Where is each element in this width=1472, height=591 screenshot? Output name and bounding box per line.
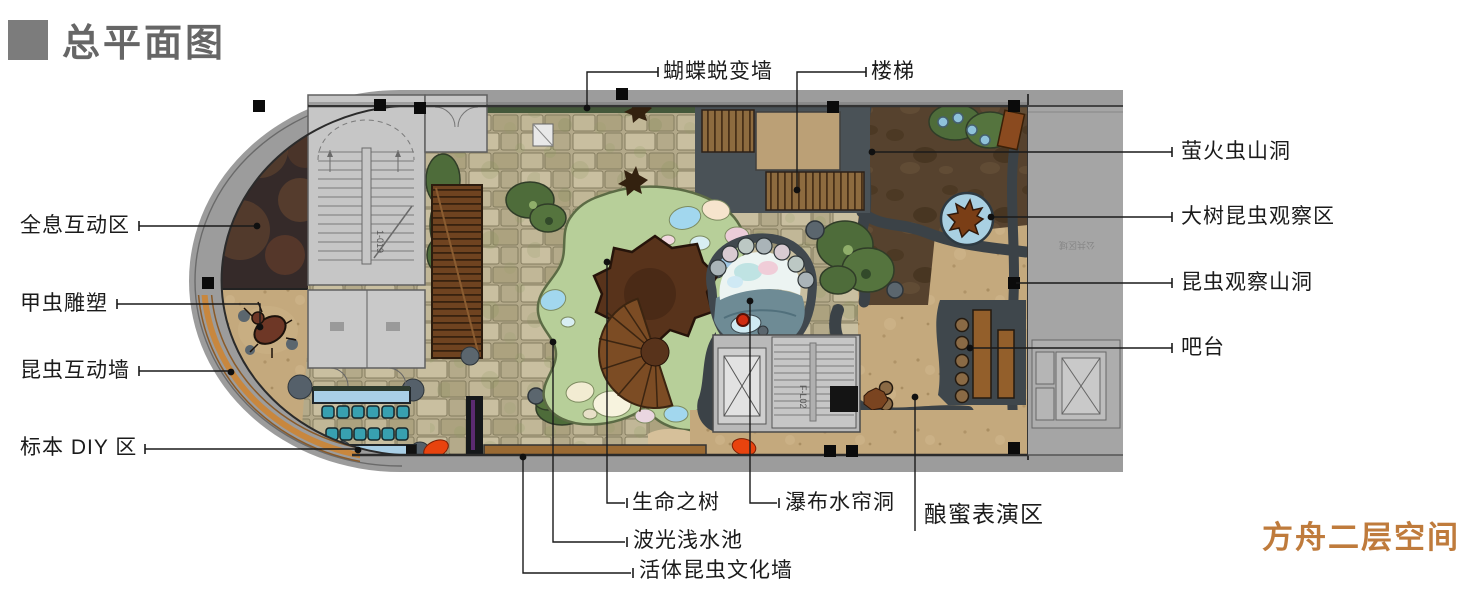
footer-caption: 方舟二层空间 — [1262, 512, 1460, 557]
page-header: 总平面图 — [8, 12, 226, 67]
callout-beetle-sculpture: 甲虫雕塑 — [20, 292, 108, 316]
stair-code-lower-text: F-L02 — [798, 385, 808, 409]
callout-firefly-cave: 萤火虫山洞 — [1181, 140, 1291, 164]
page-title: 总平面图 — [62, 12, 226, 67]
callout-butterfly-wall: 蝴蝶蜕变墙 — [663, 60, 773, 84]
callout-holographic-zone: 全息互动区 — [20, 214, 130, 238]
leader-live-insect-wall — [523, 459, 631, 573]
callout-specimen-diy: 标本 DIY 区 — [20, 436, 137, 460]
wooden-stair — [432, 185, 482, 365]
callout-waterfall-cave: 瀑布水帘洞 — [785, 491, 895, 515]
title-square-icon — [8, 20, 48, 60]
callout-insect-wall: 昆虫互动墙 — [20, 359, 130, 383]
stair-code-upper-text: 1-019 — [375, 230, 385, 253]
callout-live-insect-wall: 活体昆虫文化墙 — [639, 559, 793, 583]
callout-stairs: 楼梯 — [871, 60, 915, 84]
plan-drawing: F-L02 — [0, 0, 1472, 591]
rotated-area-text: 公共区域 — [1059, 240, 1095, 251]
callout-honey-show: 酿蜜表演区 — [924, 502, 1044, 526]
callout-insect-observation-cave: 昆虫观察山洞 — [1181, 271, 1313, 295]
callout-bar: 吧台 — [1181, 336, 1225, 360]
top-stairs — [695, 107, 870, 213]
slide: F-L02 — [0, 0, 1472, 591]
callout-tree-observation: 大树昆虫观察区 — [1181, 205, 1335, 229]
callout-shallow-pool: 波光浅水池 — [633, 529, 743, 553]
callout-tree-of-life: 生命之树 — [632, 491, 720, 515]
back-of-house: 公共区域 — [1028, 106, 1123, 455]
tree-observation-pond — [941, 193, 993, 245]
